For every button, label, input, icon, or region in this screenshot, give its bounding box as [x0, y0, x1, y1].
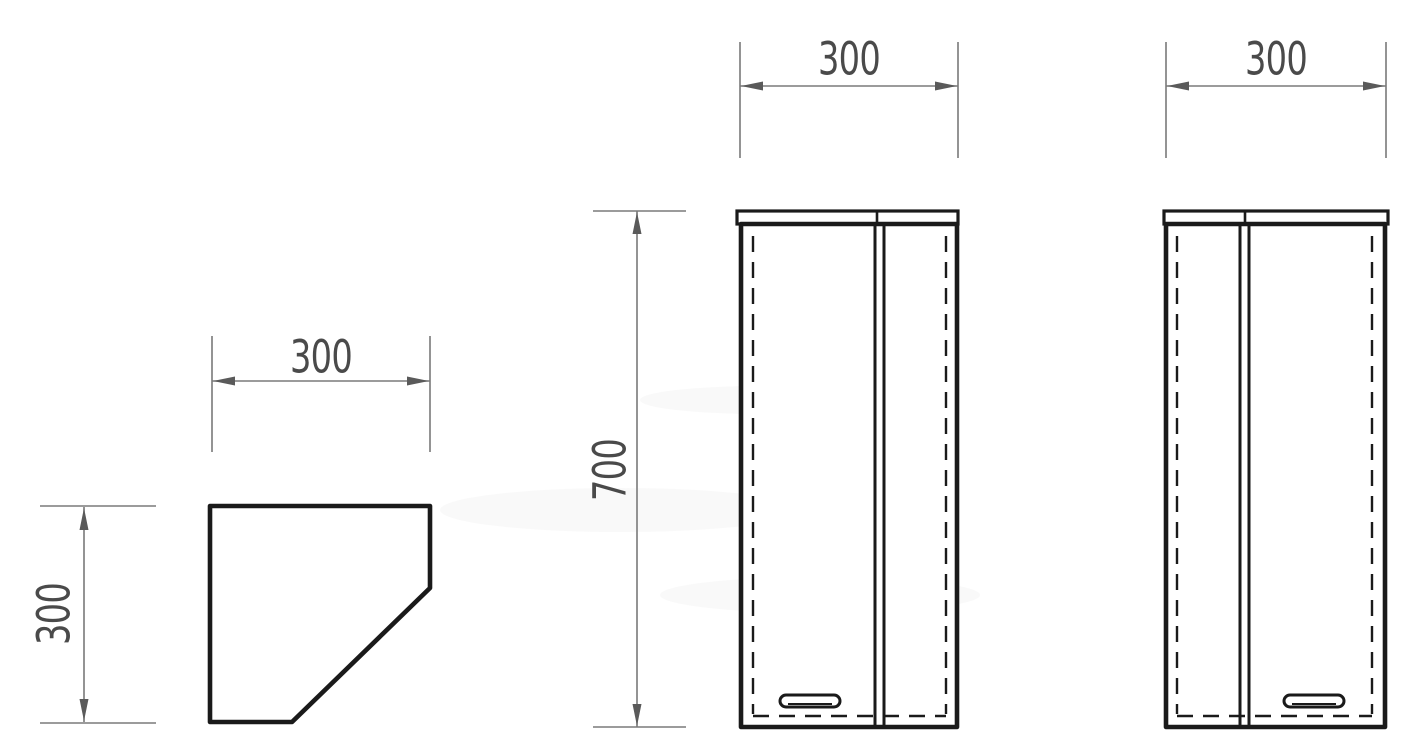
- front-view-right-door: 300: [1164, 33, 1388, 728]
- arrowhead-down: [80, 699, 89, 721]
- plan-view: 300 300: [28, 331, 431, 724]
- front-right-width-dimension: 300: [1166, 33, 1386, 159]
- arrowhead-up: [80, 508, 89, 530]
- plan-width-dimension: 300: [212, 331, 430, 453]
- plan-width-label: 300: [290, 331, 352, 384]
- arrowhead-left: [741, 82, 763, 91]
- cabinet-body-outline: [1166, 224, 1385, 727]
- front-left-width-dimension: 300: [740, 33, 958, 159]
- technical-drawing-canvas: 300 300 300: [0, 0, 1405, 754]
- arrowhead-right: [935, 82, 957, 91]
- front-view-left-door: 300 700: [584, 33, 959, 728]
- door-handle: [1284, 695, 1344, 707]
- front-left-width-label: 300: [818, 33, 880, 86]
- cabinet-plan-outline: [210, 506, 430, 722]
- arrowhead-right: [407, 377, 429, 386]
- cabinet-body-outline: [741, 224, 957, 727]
- arrowhead-left: [213, 377, 235, 386]
- arrowhead-down: [633, 704, 642, 726]
- arrowhead-right: [1363, 82, 1385, 91]
- plan-depth-label: 300: [28, 583, 81, 645]
- front-height-label: 700: [584, 439, 637, 501]
- drawing-svg: 300 300 300: [0, 0, 1405, 754]
- front-height-dimension: 700: [584, 211, 687, 727]
- plan-depth-dimension: 300: [28, 506, 157, 723]
- door-handle: [780, 695, 840, 707]
- arrowhead-left: [1167, 82, 1189, 91]
- front-right-width-label: 300: [1245, 33, 1307, 86]
- arrowhead-up: [633, 212, 642, 234]
